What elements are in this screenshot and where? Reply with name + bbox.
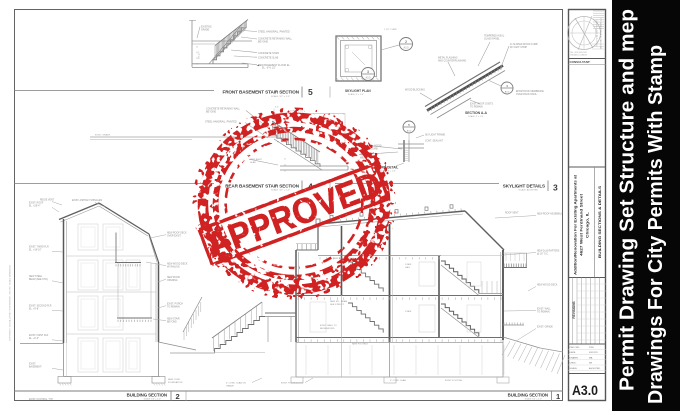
svg-text:EXIST. GRADE: EXIST. GRADE bbox=[95, 134, 111, 137]
svg-text:CHICAGO, ILLINOIS: CHICAGO, ILLINOIS bbox=[570, 54, 588, 57]
svg-text:SECTION A-A: SECTION A-A bbox=[465, 111, 487, 115]
svg-text:GRADE: GRADE bbox=[201, 28, 210, 31]
svg-text:EL. +28'-4": EL. +28'-4" bbox=[29, 205, 40, 207]
svg-text:6 R @ 7": 6 R @ 7" bbox=[199, 51, 201, 59]
svg-text:STEEL HANDRAIL, PAINTED: STEEL HANDRAIL, PAINTED bbox=[258, 31, 290, 34]
svg-text:SCALE: 1/4" = 1'-0": SCALE: 1/4" = 1'-0" bbox=[525, 398, 543, 401]
svg-text:A3.0: A3.0 bbox=[572, 382, 598, 398]
svg-text:SKYLIGHT FRAME: SKYLIGHT FRAME bbox=[425, 134, 445, 137]
svg-text:W/ RAILING: W/ RAILING bbox=[167, 265, 180, 268]
svg-text:1 1/2" CURB: 1 1/2" CURB bbox=[384, 29, 397, 31]
svg-text:TO REMAIN: TO REMAIN bbox=[167, 305, 180, 308]
svg-text:SKYLIGHT DETAILS: SKYLIGHT DETAILS bbox=[503, 184, 545, 189]
svg-text:3: 3 bbox=[553, 182, 558, 192]
svg-text:BEYOND: BEYOND bbox=[258, 40, 268, 43]
svg-text:3: 3 bbox=[367, 70, 369, 74]
svg-text:OVER EXIST.: OVER EXIST. bbox=[167, 235, 182, 237]
svg-text:EL. +0'-0": EL. +0'-0" bbox=[29, 338, 39, 340]
svg-text:NEW WOOD DECK: NEW WOOD DECK bbox=[537, 285, 558, 287]
svg-text:CONCRETE SLAB: CONCRETE SLAB bbox=[258, 56, 279, 59]
svg-text:STAIR: STAIR bbox=[405, 263, 412, 266]
svg-text:3'-6": 3'-6" bbox=[275, 107, 279, 109]
svg-text:W/ CANT STRIP: W/ CANT STRIP bbox=[510, 46, 528, 49]
svg-text:COPYRIGHT 2023 ALL RIGHTS RESE: COPYRIGHT 2023 ALL RIGHTS RESERVED - DO … bbox=[9, 264, 12, 341]
svg-text:FOUNDATION: FOUNDATION bbox=[168, 381, 183, 384]
svg-text:SCALE: AS NOTED: SCALE: AS NOTED bbox=[519, 189, 539, 192]
svg-text:METAL FLASHING: METAL FLASHING bbox=[438, 57, 458, 60]
svg-text:GLASS PANEL: GLASS PANEL bbox=[484, 37, 500, 40]
svg-text:4627 West Ferdinand Street: 4627 West Ferdinand Street bbox=[579, 193, 584, 256]
svg-text:TO REMAIN: TO REMAIN bbox=[537, 310, 550, 313]
svg-text:EL. +18'-10": EL. +18'-10" bbox=[29, 249, 42, 251]
svg-text:NEW DOOR: NEW DOOR bbox=[167, 277, 180, 279]
svg-text:STRUCTURAL | MEP | PERMITS: STRUCTURAL | MEP | PERMITS bbox=[596, 19, 599, 47]
svg-text:STAIR: STAIR bbox=[405, 310, 412, 313]
svg-text:SR: SR bbox=[589, 363, 592, 365]
svg-text:BEYOND: BEYOND bbox=[206, 110, 216, 113]
svg-text:EL. +9'-8": EL. +9'-8" bbox=[29, 308, 39, 310]
svg-text:SKYLIGHT PLAN: SKYLIGHT PLAN bbox=[345, 89, 371, 93]
svg-text:NEW STAIR: NEW STAIR bbox=[167, 318, 180, 321]
svg-text:5: 5 bbox=[308, 87, 313, 97]
svg-text:SLAB: SLAB bbox=[250, 161, 256, 164]
svg-text:A3.0: A3.0 bbox=[404, 47, 410, 50]
svg-text:EXIST.: EXIST. bbox=[29, 364, 36, 366]
svg-text:WOOD BLOCKING: WOOD BLOCKING bbox=[405, 90, 425, 92]
svg-text:SEE STRUCT.: SEE STRUCT. bbox=[330, 304, 345, 306]
svg-text:NEW WOOD DECK: NEW WOOD DECK bbox=[167, 264, 188, 266]
svg-text:SCALE: 3" = 1'-0": SCALE: 3" = 1'-0" bbox=[348, 93, 364, 96]
svg-text:EXIST. GRADE: EXIST. GRADE bbox=[537, 326, 553, 329]
svg-text:EXIST. ROOF JOISTS: EXIST. ROOF JOISTS bbox=[470, 104, 493, 106]
svg-text:1: 1 bbox=[556, 392, 560, 401]
svg-text:05/12/23: 05/12/23 bbox=[589, 352, 598, 354]
svg-text:CONCRETE STAIR: CONCRETE STAIR bbox=[258, 52, 279, 55]
svg-text:EXIST. ROOF: EXIST. ROOF bbox=[29, 203, 44, 205]
svg-text:BEYOND: BEYOND bbox=[167, 321, 177, 323]
svg-text:NEW FOOTING: NEW FOOTING bbox=[352, 344, 368, 346]
svg-text:SCALE: 1/2" = 1'-0": SCALE: 1/2" = 1'-0" bbox=[271, 95, 290, 98]
svg-text:TEMPERED INSUL.: TEMPERED INSUL. bbox=[484, 36, 505, 38]
svg-text:GRADE: GRADE bbox=[226, 384, 234, 387]
svg-text:@ 16" O.C.: @ 16" O.C. bbox=[537, 253, 549, 255]
svg-text:REVISIONS: REVISIONS bbox=[572, 301, 576, 318]
svg-text:4" CONC. SLAB: 4" CONC. SLAB bbox=[390, 379, 406, 382]
svg-text:STEEL HANDRAIL, PAINTED: STEEL HANDRAIL, PAINTED bbox=[205, 121, 237, 124]
svg-text:SCALE: 3" = 1'-0": SCALE: 3" = 1'-0" bbox=[468, 115, 484, 118]
svg-text:AS NOTED: AS NOTED bbox=[589, 367, 601, 370]
svg-text:ROOF VENT: ROOF VENT bbox=[505, 213, 519, 215]
svg-text:NEW STL. BEAM: NEW STL. BEAM bbox=[330, 300, 347, 303]
svg-text:NEW 2x10 RAFTERS: NEW 2x10 RAFTERS bbox=[537, 250, 560, 253]
svg-text:EXIST. THIRD FLR: EXIST. THIRD FLR bbox=[29, 247, 49, 249]
svg-text:RIDGE VENT: RIDGE VENT bbox=[40, 200, 55, 202]
svg-text:Addition/Renovation For Existi: Addition/Renovation For Existing Apartme… bbox=[573, 174, 578, 275]
svg-text:EXIST. PORCH: EXIST. PORCH bbox=[167, 304, 183, 306]
svg-text:MA: MA bbox=[589, 356, 593, 359]
svg-text:A3.0: A3.0 bbox=[366, 77, 372, 80]
svg-text:NEW ROOF ASSEMBLY: NEW ROOF ASSEMBLY bbox=[537, 213, 563, 216]
svg-text:BUILDING SECTION: BUILDING SECTION bbox=[127, 392, 167, 397]
svg-text:OVER RIGID INSUL.: OVER RIGID INSUL. bbox=[516, 94, 538, 96]
svg-text:BUILDING SECTIONS & DETAILS: BUILDING SECTIONS & DETAILS bbox=[598, 185, 602, 258]
svg-text:NEW ROOF DECK: NEW ROOF DECK bbox=[167, 233, 187, 235]
svg-text:2: 2 bbox=[405, 40, 407, 44]
svg-text:EXIST. WALL: EXIST. WALL bbox=[537, 308, 552, 311]
svg-text:BEAM (SEE STR.): BEAM (SEE STR.) bbox=[29, 278, 48, 281]
svg-text:EXIST. FOOTING, TYP.: EXIST. FOOTING, TYP. bbox=[29, 399, 54, 401]
svg-text:BE REMOVED: BE REMOVED bbox=[320, 328, 335, 330]
svg-text:Drawings For City Permits With: Drawings For City Permits With Stamp bbox=[644, 45, 667, 404]
svg-text:CONT. SEALANT: CONT. SEALANT bbox=[425, 140, 444, 143]
svg-text:EL. -8'-6 1/2": EL. -8'-6 1/2" bbox=[262, 67, 276, 70]
svg-text:PROJ NO:: PROJ NO: bbox=[570, 347, 581, 349]
svg-text:DATE:: DATE: bbox=[570, 351, 577, 354]
svg-text:TO REMAIN: TO REMAIN bbox=[470, 105, 483, 108]
svg-text:SCALE: 1/4" = 1'-0": SCALE: 1/4" = 1'-0" bbox=[144, 398, 162, 401]
svg-text:SCALE: 1/2" = 1'-0": SCALE: 1/2" = 1'-0" bbox=[271, 189, 290, 192]
svg-text:OPENING: OPENING bbox=[167, 280, 178, 282]
svg-text:2: 2 bbox=[176, 392, 180, 401]
svg-text:4" CONC. SLAB ON: 4" CONC. SLAB ON bbox=[226, 382, 246, 385]
svg-text:EXIST. ASPHALT SHINGLES: EXIST. ASPHALT SHINGLES bbox=[72, 199, 103, 202]
svg-text:EPDM ROOF MEMBRANE: EPDM ROOF MEMBRANE bbox=[516, 90, 544, 93]
svg-text:EXIST. FIRST FLR: EXIST. FIRST FLR bbox=[29, 335, 49, 337]
svg-text:BUILDING SECTION: BUILDING SECTION bbox=[508, 392, 548, 397]
svg-text:EXIST. FOOTING: EXIST. FOOTING bbox=[445, 380, 463, 382]
svg-text:NEW STEEL: NEW STEEL bbox=[29, 276, 43, 278]
svg-text:HALL: HALL bbox=[405, 266, 411, 269]
svg-text:SCALE:: SCALE: bbox=[570, 367, 578, 370]
svg-text:REAR BASEMENT STAIR SECTION: REAR BASEMENT STAIR SECTION bbox=[225, 184, 300, 189]
svg-text:Chicago, IL: Chicago, IL bbox=[585, 211, 590, 238]
svg-text:Permit Drawing Set Structure a: Permit Drawing Set Structure and mep bbox=[616, 9, 639, 391]
svg-text:2310: 2310 bbox=[589, 347, 595, 349]
svg-text:DRAWN:: DRAWN: bbox=[570, 356, 579, 359]
svg-text:2x SLOPED WOOD CURB: 2x SLOPED WOOD CURB bbox=[510, 44, 538, 46]
svg-text:CONSULTANT:: CONSULTANT: bbox=[570, 60, 591, 64]
svg-text:EXISTING: EXISTING bbox=[201, 27, 212, 29]
svg-text:AND COUNTERFLASHING: AND COUNTERFLASHING bbox=[438, 59, 467, 62]
svg-text:CHKD:: CHKD: bbox=[570, 363, 577, 365]
svg-text:A3.0: A3.0 bbox=[407, 129, 412, 132]
svg-text:EXIST. WALL TO: EXIST. WALL TO bbox=[320, 324, 337, 327]
svg-text:EXIST. SECOND FLR: EXIST. SECOND FLR bbox=[29, 306, 52, 308]
svg-text:FRONT BASEMENT STAIR SECTION: FRONT BASEMENT STAIR SECTION bbox=[223, 90, 300, 95]
svg-text:BASEMENT: BASEMENT bbox=[29, 365, 42, 368]
svg-text:NEW CONC.: NEW CONC. bbox=[168, 379, 181, 381]
svg-text:A3.0: A3.0 bbox=[505, 90, 510, 93]
